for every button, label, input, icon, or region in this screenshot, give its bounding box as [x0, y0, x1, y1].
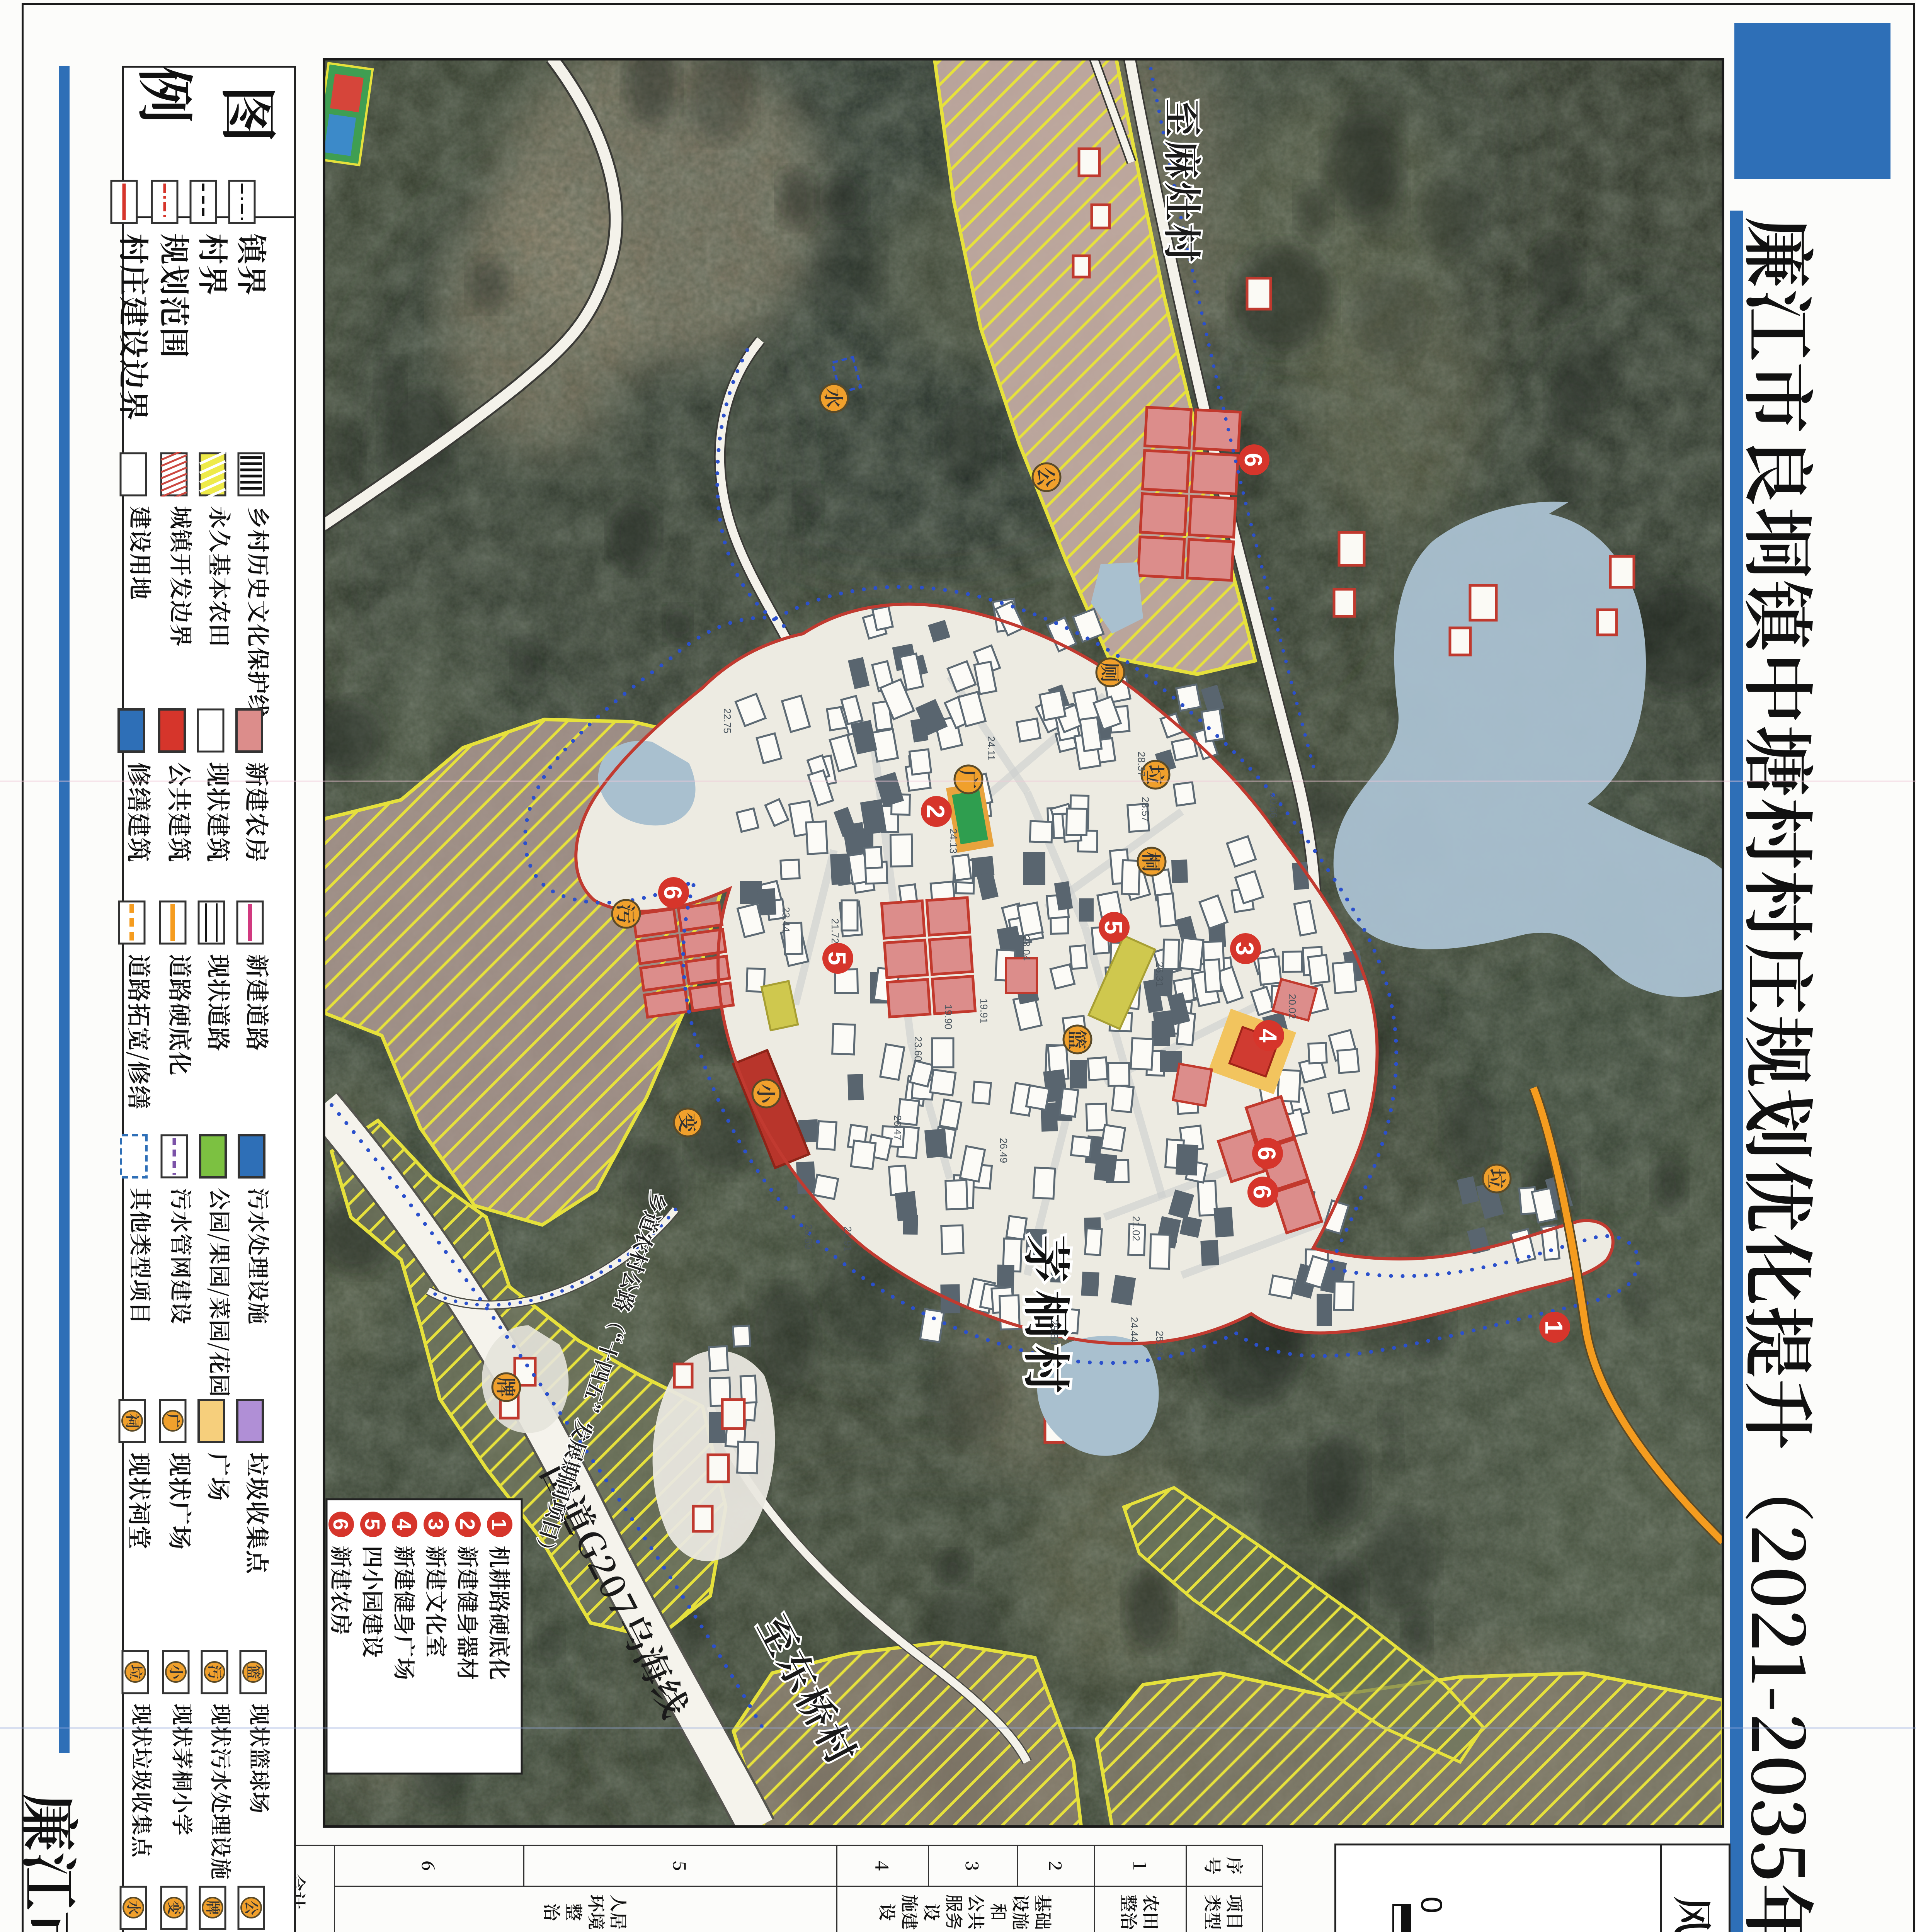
svg-text:1: 1 — [487, 1519, 510, 1530]
svg-text:机耕路硬底化: 机耕路硬底化 — [485, 1546, 517, 1680]
svg-text:篮: 篮 — [1064, 1029, 1093, 1049]
svg-text:25.31: 25.31 — [1154, 962, 1166, 987]
svg-text:污: 污 — [613, 904, 642, 924]
svg-text:23.44: 23.44 — [780, 907, 792, 932]
svg-text:四小园建设: 四小园建设 — [358, 1546, 390, 1658]
svg-text:25.50: 25.50 — [1048, 1320, 1060, 1345]
svg-text:19.90: 19.90 — [943, 1004, 954, 1029]
svg-text:水: 水 — [124, 1900, 145, 1915]
svg-text:24.13: 24.13 — [948, 828, 959, 854]
svg-text:5: 5 — [1099, 920, 1127, 934]
svg-text:公: 公 — [242, 1900, 263, 1915]
svg-text:20.66: 20.66 — [1268, 793, 1280, 818]
svg-text:28.57: 28.57 — [1140, 797, 1151, 822]
svg-text:0: 0 — [1415, 1896, 1449, 1913]
svg-text:20.02: 20.02 — [1286, 994, 1298, 1019]
svg-text:污: 污 — [205, 1665, 226, 1679]
svg-text:6: 6 — [1253, 1146, 1281, 1160]
svg-text:6: 6 — [659, 886, 687, 900]
svg-text:24.11: 24.11 — [985, 736, 997, 760]
svg-text:水: 水 — [820, 388, 849, 408]
svg-text:篮: 篮 — [244, 1665, 265, 1679]
svg-text:2: 2 — [922, 804, 949, 818]
svg-text:21.91: 21.91 — [842, 1226, 854, 1252]
svg-text:24.44: 24.44 — [1128, 1317, 1140, 1342]
svg-text:广: 广 — [163, 1413, 185, 1428]
svg-text:23.60: 23.60 — [912, 1036, 924, 1061]
svg-text:3: 3 — [1231, 942, 1259, 956]
svg-text:22.75: 22.75 — [721, 708, 733, 733]
svg-text:4: 4 — [392, 1519, 415, 1530]
svg-text:26.49: 26.49 — [998, 1138, 1009, 1163]
svg-text:厕: 厕 — [1097, 662, 1126, 682]
svg-text:新建健身器材: 新建健身器材 — [453, 1546, 485, 1680]
svg-text:桐: 桐 — [1138, 852, 1167, 872]
svg-text:25.34: 25.34 — [1154, 1331, 1166, 1356]
svg-text:牌: 牌 — [203, 1900, 225, 1915]
svg-text:公: 公 — [1033, 467, 1062, 487]
svg-text:6: 6 — [1248, 1185, 1276, 1199]
svg-text:1: 1 — [1540, 1320, 1568, 1334]
svg-text:21.02: 21.02 — [1130, 1216, 1142, 1241]
svg-text:至麻灶村: 至麻灶村 — [1157, 99, 1213, 265]
svg-text:4: 4 — [1254, 1029, 1282, 1043]
svg-text:21.72: 21.72 — [829, 918, 841, 944]
svg-text:19.91: 19.91 — [978, 998, 990, 1024]
svg-text:祠: 祠 — [123, 1413, 144, 1428]
svg-text:变: 变 — [674, 1112, 703, 1133]
svg-text:茅桐村: 茅桐村 — [1015, 1235, 1085, 1400]
svg-text:6: 6 — [1239, 453, 1267, 467]
svg-text:新建健身广场: 新建健身广场 — [390, 1546, 422, 1680]
svg-text:26.47: 26.47 — [892, 1115, 904, 1140]
svg-text:2: 2 — [456, 1519, 479, 1530]
svg-text:小: 小 — [167, 1665, 188, 1679]
svg-text:广: 广 — [955, 769, 984, 789]
svg-text:新建文化室: 新建文化室 — [421, 1546, 454, 1658]
svg-text:小: 小 — [753, 1083, 782, 1104]
svg-text:新建农房: 新建农房 — [326, 1546, 359, 1635]
svg-text:3: 3 — [424, 1519, 447, 1530]
svg-text:28.69: 28.69 — [803, 1224, 814, 1249]
svg-text:变: 变 — [165, 1900, 186, 1915]
svg-text:6: 6 — [329, 1519, 352, 1530]
svg-text:5: 5 — [361, 1519, 384, 1530]
svg-text:28.37: 28.37 — [1136, 752, 1147, 777]
svg-text:牌: 牌 — [493, 1377, 522, 1397]
svg-text:垃: 垃 — [1483, 1168, 1512, 1189]
svg-text:5: 5 — [823, 951, 851, 965]
svg-text:垃: 垃 — [126, 1665, 147, 1679]
svg-text:28.04: 28.04 — [1021, 935, 1032, 961]
